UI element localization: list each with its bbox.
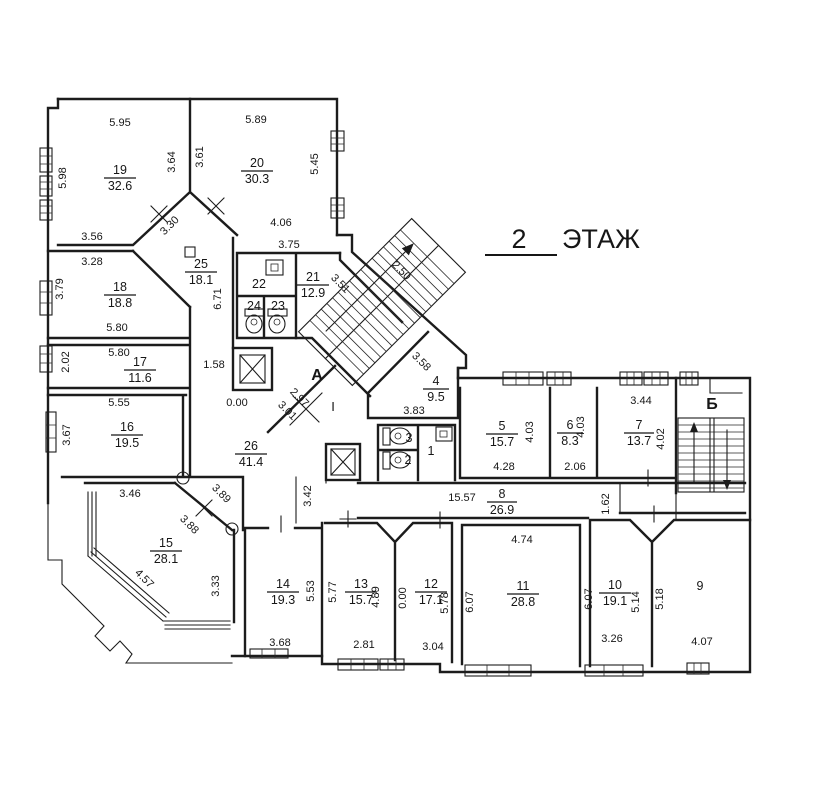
dim-label: 5.77 <box>327 581 339 602</box>
svg-text:15.7: 15.7 <box>490 435 514 449</box>
dim-label: 2.06 <box>564 461 585 473</box>
svg-text:1: 1 <box>428 444 435 458</box>
dim-label: 3.88 <box>177 513 201 537</box>
room-label-16: 1619.5 <box>111 420 143 450</box>
dim-label: 3.68 <box>269 637 290 649</box>
svg-text:19.1: 19.1 <box>603 594 627 608</box>
dim-label: 3.83 <box>403 405 424 417</box>
svg-text:13.7: 13.7 <box>627 434 651 448</box>
svg-text:28.8: 28.8 <box>511 595 535 609</box>
dim-label: 3.61 <box>194 146 206 167</box>
elevator-shaft-2 <box>326 444 360 480</box>
dim-label: 5.55 <box>108 397 129 409</box>
room-label-9: 9 <box>697 579 704 593</box>
svg-text:11.6: 11.6 <box>128 371 151 385</box>
room-label-15: 1528.1 <box>150 536 182 566</box>
staircase-b <box>678 418 744 492</box>
dim-label: 3.56 <box>81 231 102 243</box>
svg-text:13: 13 <box>354 577 368 591</box>
svg-text:19: 19 <box>113 163 127 177</box>
dim-label: 3.64 <box>166 151 178 172</box>
dim-label: 5.80 <box>108 347 129 359</box>
floor-plan-page: 1932.6 2030.3 1818.8 2518.1 22 2112.9 24… <box>0 0 819 798</box>
floor-title-word: ЭТАЖ <box>562 224 640 254</box>
room-label-2: 2 <box>405 453 412 467</box>
room-label-4: 49.5 <box>423 374 449 404</box>
svg-text:11: 11 <box>517 579 530 593</box>
svg-text:14: 14 <box>276 577 290 591</box>
dim-label: 4.89 <box>370 586 382 607</box>
svg-text:18.1: 18.1 <box>189 273 213 287</box>
svg-text:41.4: 41.4 <box>239 455 263 469</box>
dim-label: 4.02 <box>655 428 667 449</box>
room-label-5: 515.7 <box>486 419 518 449</box>
room-label-3: 3 <box>406 431 413 445</box>
dim-label: 5.95 <box>109 117 130 129</box>
floor-plan-drawing: 1932.6 2030.3 1818.8 2518.1 22 2112.9 24… <box>0 0 819 798</box>
room-label-22: 22 <box>252 277 266 291</box>
svg-text:12: 12 <box>424 577 438 591</box>
svg-text:5: 5 <box>499 419 506 433</box>
dim-label: 0.00 <box>397 587 409 608</box>
svg-text:18: 18 <box>113 280 127 294</box>
dim-label: 6.07 <box>583 588 595 609</box>
floor-title: 2 ЭТАЖ <box>485 224 640 255</box>
room-label-23: 23 <box>271 299 285 313</box>
svg-text:25: 25 <box>194 257 208 271</box>
dim-label: 3.79 <box>54 278 66 299</box>
dim-label: 5.98 <box>57 167 69 188</box>
svg-text:20: 20 <box>250 156 264 170</box>
dimension-labels: 5.95 5.89 5.98 3.64 3.61 5.45 3.56 3.30 … <box>54 114 713 653</box>
svg-text:12.9: 12.9 <box>301 286 325 300</box>
svg-text:16: 16 <box>120 420 134 434</box>
svg-text:28.1: 28.1 <box>154 552 178 566</box>
floor-title-number: 2 <box>511 224 526 254</box>
dim-label: 3.51 <box>328 272 352 296</box>
dim-label: 3.67 <box>61 424 73 445</box>
svg-text:6: 6 <box>567 418 574 432</box>
dim-label: 3.33 <box>210 575 222 596</box>
dim-label: 3.58 <box>409 350 433 374</box>
dim-label: 1.62 <box>600 493 612 514</box>
room-label-19: 1932.6 <box>104 163 136 193</box>
svg-text:23: 23 <box>271 299 285 313</box>
svg-text:22: 22 <box>252 277 266 291</box>
svg-text:2: 2 <box>405 453 412 467</box>
dim-label: 6.07 <box>464 591 476 612</box>
room-label-11: 1128.8 <box>507 579 539 609</box>
svg-text:9.5: 9.5 <box>427 390 444 404</box>
dim-label: 3.46 <box>119 488 140 500</box>
axis-label-i: I <box>331 399 335 414</box>
dim-label: 0.00 <box>226 397 247 409</box>
svg-text:24: 24 <box>247 299 261 313</box>
room-label-21: 2112.9 <box>297 270 329 300</box>
dim-label: 5.45 <box>309 153 321 174</box>
dim-label: 5.80 <box>106 322 127 334</box>
dim-label: 4.28 <box>493 461 514 473</box>
dim-label: 5.78 <box>439 592 451 613</box>
dim-label: 5.14 <box>630 591 642 612</box>
room-label-1: 1 <box>428 444 435 458</box>
dim-label: 5.18 <box>654 588 666 609</box>
dim-label: 5.53 <box>305 580 317 601</box>
room-label-25: 2518.1 <box>185 257 217 287</box>
svg-text:19.5: 19.5 <box>115 436 139 450</box>
dim-label: 4.57 <box>132 567 156 591</box>
room-label-26: 2641.4 <box>235 439 267 469</box>
dim-label: 4.03 <box>575 416 587 437</box>
dim-label: 3.26 <box>601 633 622 645</box>
svg-text:17: 17 <box>133 355 147 369</box>
dim-label: 4.07 <box>691 636 712 648</box>
dim-label: 3.75 <box>278 239 299 251</box>
svg-text:4: 4 <box>433 374 440 388</box>
dim-label: 6.71 <box>212 288 224 309</box>
dim-label: 5.89 <box>245 114 266 126</box>
room-label-24: 24 <box>247 299 261 313</box>
svg-text:3: 3 <box>406 431 413 445</box>
dim-label: 4.03 <box>524 421 536 442</box>
dim-label: 15.57 <box>448 492 476 504</box>
dim-label: 3.44 <box>630 395 651 407</box>
room-label-17: 1711.6 <box>124 355 156 385</box>
svg-text:30.3: 30.3 <box>245 172 269 186</box>
elevator-shaft-1 <box>233 348 272 390</box>
svg-text:7: 7 <box>636 418 643 432</box>
svg-text:10: 10 <box>608 578 622 592</box>
dim-label: 4.06 <box>270 217 291 229</box>
svg-text:9: 9 <box>697 579 704 593</box>
staircase-a <box>299 219 466 386</box>
dim-label: 1.58 <box>203 359 224 371</box>
dim-label: 3.28 <box>81 256 102 268</box>
dim-label: 3.04 <box>422 641 443 653</box>
room-label-20: 2030.3 <box>241 156 273 186</box>
svg-text:15: 15 <box>159 536 173 550</box>
svg-text:32.6: 32.6 <box>108 179 132 193</box>
svg-text:19.3: 19.3 <box>271 593 295 607</box>
dim-label: 3.42 <box>302 485 314 506</box>
svg-text:8: 8 <box>499 487 506 501</box>
svg-text:21: 21 <box>306 270 320 284</box>
stair-label-b: Б <box>706 396 718 413</box>
dim-label: 2.81 <box>353 639 374 651</box>
svg-text:26: 26 <box>244 439 258 453</box>
room-label-10: 1019.1 <box>599 578 631 608</box>
room-label-8: 826.9 <box>487 487 517 517</box>
dim-label: 3.89 <box>209 482 233 506</box>
room-label-7: 713.7 <box>624 418 654 448</box>
room-label-14: 1419.3 <box>267 577 299 607</box>
dim-label: 2.02 <box>60 351 72 372</box>
stair-label-a: А <box>311 367 323 384</box>
dim-label: 4.74 <box>511 534 532 546</box>
svg-text:26.9: 26.9 <box>490 503 514 517</box>
room-label-18: 1818.8 <box>104 280 136 310</box>
svg-text:18.8: 18.8 <box>108 296 132 310</box>
